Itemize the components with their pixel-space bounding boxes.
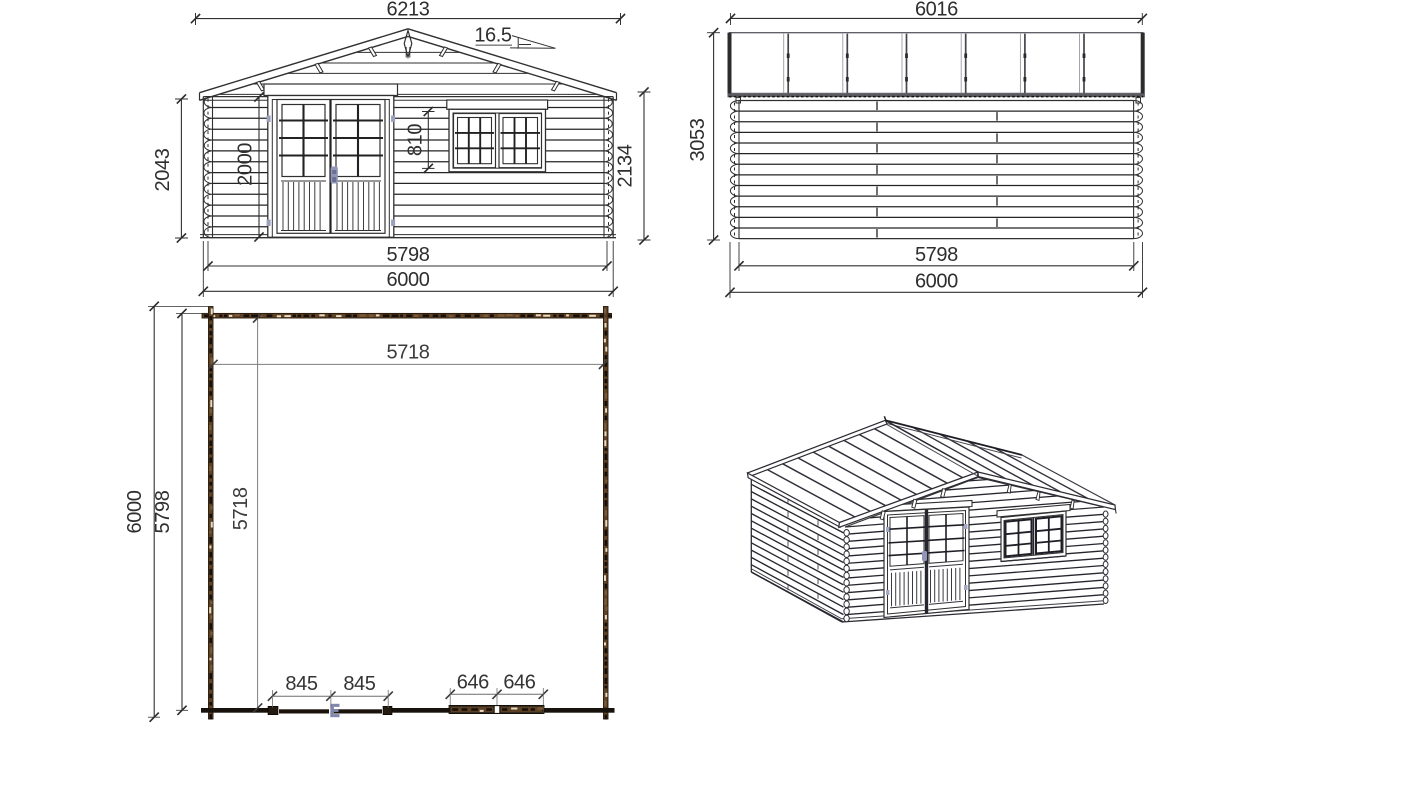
svg-text:5798: 5798	[915, 244, 958, 266]
svg-text:5718: 5718	[230, 487, 252, 530]
svg-text:845: 845	[343, 673, 375, 695]
svg-text:5718: 5718	[387, 341, 430, 363]
svg-text:6213: 6213	[387, 0, 430, 21]
svg-text:646: 646	[457, 671, 489, 693]
svg-text:2134: 2134	[615, 144, 637, 187]
svg-text:6016: 6016	[915, 0, 958, 20]
svg-text:6000: 6000	[387, 269, 430, 291]
svg-text:2000: 2000	[235, 143, 257, 186]
svg-text:810: 810	[405, 124, 427, 156]
svg-text:845: 845	[285, 673, 317, 695]
svg-text:5798: 5798	[387, 244, 430, 266]
svg-text:6000: 6000	[915, 270, 958, 292]
svg-text:646: 646	[503, 671, 535, 693]
svg-text:3053: 3053	[687, 118, 709, 161]
svg-text:6000: 6000	[124, 490, 146, 533]
svg-text:2043: 2043	[152, 148, 174, 191]
svg-text:16.5: 16.5	[474, 25, 512, 47]
svg-text:5798: 5798	[152, 490, 174, 533]
